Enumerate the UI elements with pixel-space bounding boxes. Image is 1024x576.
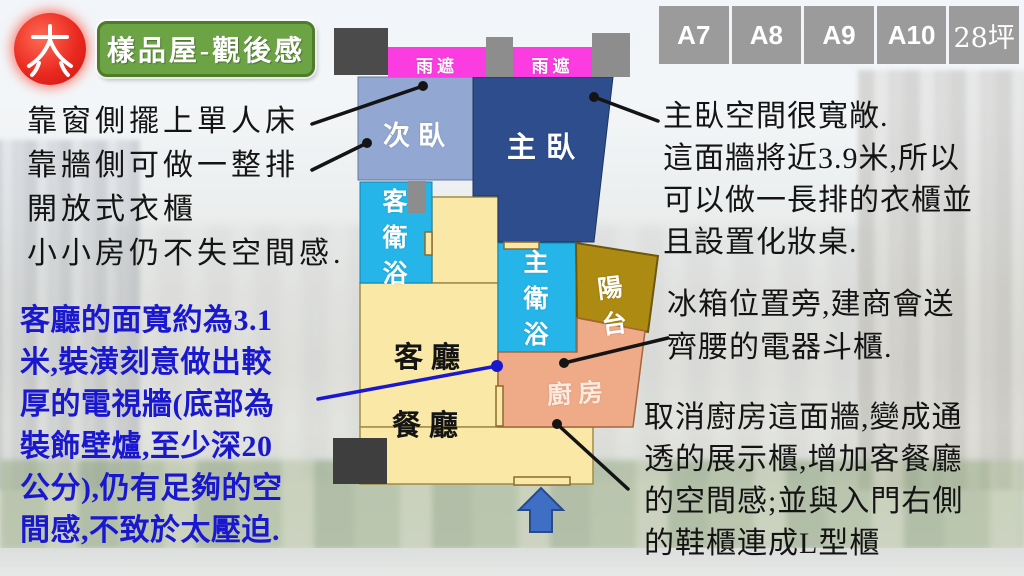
note-line: 裝飾壁爐,至少深20 — [20, 426, 283, 468]
note-master-bedroom: 主臥空間很寬敞. 這面牆將近3.9米,所以 可以做一長排的衣櫃並 且設置化妝桌. — [663, 96, 973, 264]
note-line: 小小房仍不失空間感. — [27, 232, 345, 276]
room-label-rain-cover-left: 雨遮 — [388, 52, 486, 77]
room-label-guest-bathroom: 客衛浴 — [381, 185, 409, 293]
note-line: 厚的電視牆(底部為 — [20, 384, 283, 426]
unit-tab-bar: A7 A8 A9 A10 28坪 — [659, 6, 1019, 64]
note-line: 靠窗側擺上單人床 — [27, 100, 345, 144]
note-living-room: 客廳的面寬約為3.1 米,裝潢刻意做出較 厚的電視牆(底部為 裝飾壁爐,至少深2… — [20, 300, 283, 552]
room-label-balcony: 陽台 — [580, 264, 652, 343]
room-label-master-bedroom: 主臥 — [500, 124, 592, 166]
note-line: 冰箱位置旁,建商會送 — [667, 283, 955, 326]
room-label-living-room: 客廳 — [394, 334, 478, 376]
note-secondary-bedroom: 靠窗側擺上單人床 靠牆側可做一整排 開放式衣櫃 小小房仍不失空間感. — [27, 100, 345, 276]
note-line: 的空間感;並與入門右側 — [644, 481, 963, 523]
room-label-master-bathroom: 主衛浴 — [522, 246, 550, 354]
slide-title: 樣品屋-觀後感 — [107, 29, 305, 69]
note-line: 的鞋櫃連成L型櫃 — [644, 523, 963, 565]
room-label-dining-room: 餐廳 — [392, 402, 476, 444]
note-line: 取消廚房這面牆,變成通 — [644, 397, 963, 439]
unit-tab-a8[interactable]: A8 — [732, 6, 802, 64]
note-line: 客廳的面寬約為3.1 — [20, 300, 283, 342]
note-line: 齊腰的電器斗櫃. — [667, 326, 955, 369]
note-line: 這面牆將近3.9米,所以 — [663, 138, 973, 180]
note-line: 米,裝潢刻意做出較 — [20, 342, 283, 384]
unit-tab-a9[interactable]: A9 — [804, 6, 874, 64]
note-line: 透的展示櫃,增加客餐廳 — [644, 439, 963, 481]
note-line: 主臥空間很寬敞. — [663, 96, 973, 138]
room-label-kitchen: 廚房 — [545, 372, 611, 411]
brand-seal-logo — [14, 13, 86, 85]
note-line: 開放式衣櫃 — [27, 188, 345, 232]
slide-title-badge: 樣品屋-觀後感 — [97, 21, 315, 77]
note-line: 靠牆側可做一整排 — [27, 144, 345, 188]
note-kitchen-cabinet: 冰箱位置旁,建商會送 齊腰的電器斗櫃. — [667, 283, 955, 369]
note-kitchen-wall: 取消廚房這面牆,變成通 透的展示櫃,增加客餐廳 的空間感;並與入門右側 的鞋櫃連… — [644, 397, 963, 565]
unit-tab-a10[interactable]: A10 — [877, 6, 947, 64]
seal-glyph-icon — [14, 13, 86, 85]
unit-tab-a7[interactable]: A7 — [659, 6, 729, 64]
unit-tab-size[interactable]: 28坪 — [949, 6, 1019, 64]
room-label-rain-cover-right: 雨遮 — [513, 52, 592, 77]
note-line: 可以做一長排的衣櫃並 — [663, 180, 973, 222]
note-line: 公分),仍有足夠的空 — [20, 468, 283, 510]
note-line: 間感,不致於太壓迫. — [20, 510, 283, 552]
slide: 樣品屋-觀後感 A7 A8 A9 A10 28坪 — [0, 0, 1024, 576]
room-label-secondary-bedroom: 次臥 — [376, 114, 460, 153]
note-line: 且設置化妝桌. — [663, 222, 973, 264]
